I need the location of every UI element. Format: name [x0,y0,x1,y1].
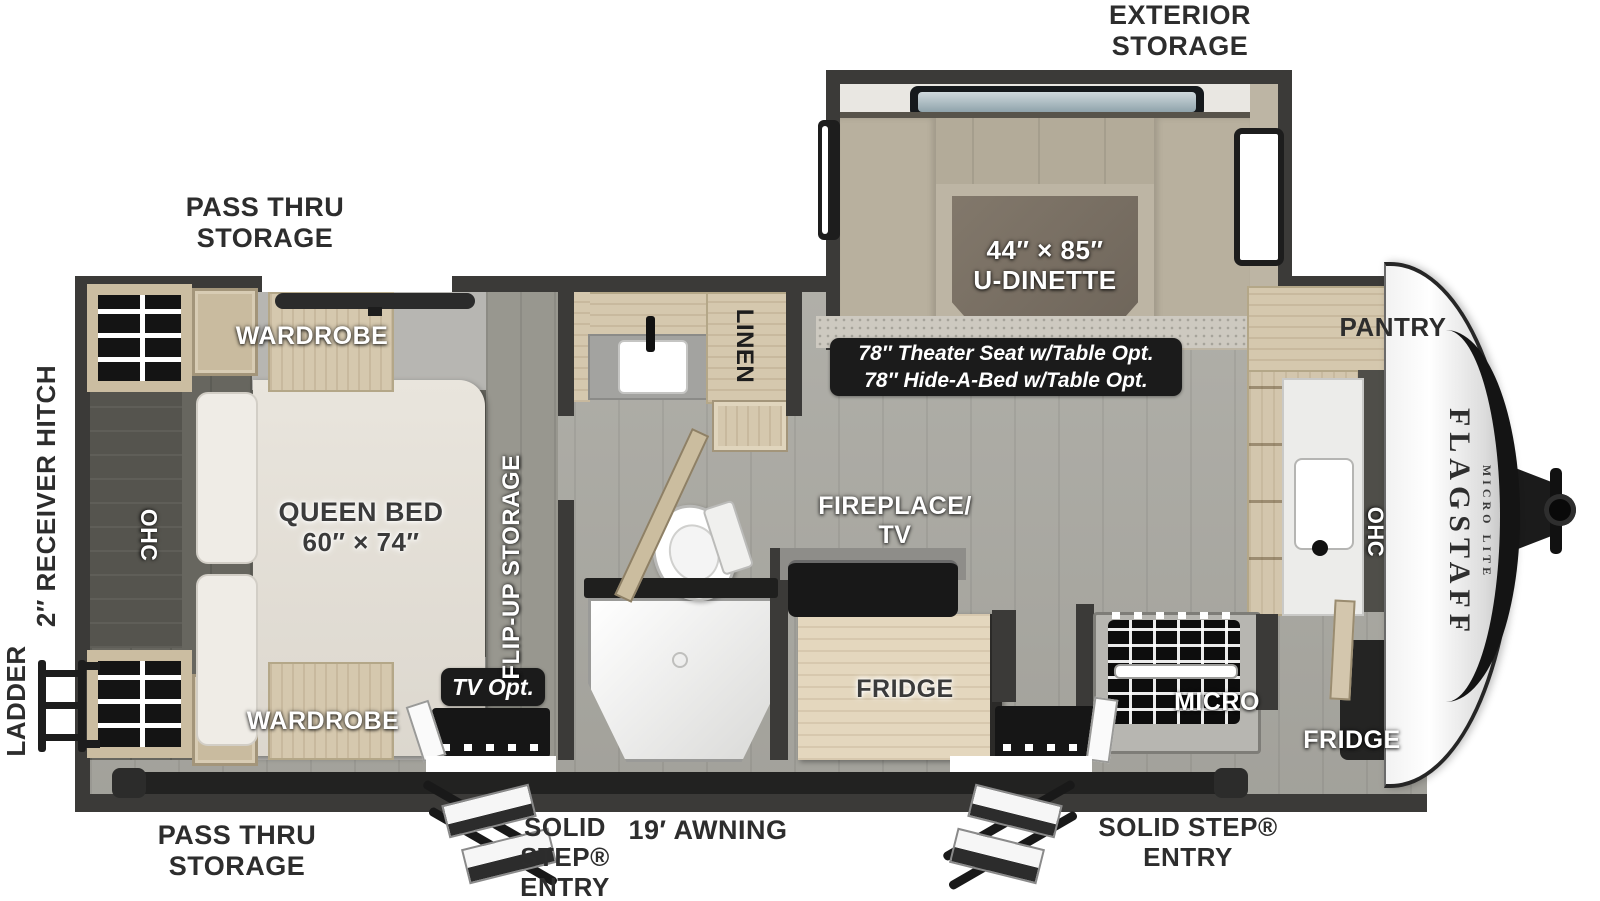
bedroom-window-opening [262,276,452,292]
label-pantry: PANTRY [1293,313,1493,343]
bath-faucet-icon [646,316,655,352]
slide-out: 44″ × 85″ U-DINETTE [826,70,1292,350]
kitchen-faucet-icon [1312,540,1328,556]
bath-wall-left-upper [558,292,574,416]
label-linen: LINEN [734,301,758,391]
slide-window-left-icon [818,120,840,240]
dinette-seat-left [840,118,936,336]
label-fridge-front: FRIDGE [1252,726,1452,755]
options-badge: 78″ Theater Seat w/Table Opt. 78″ Hide-A… [830,338,1182,396]
label-awning: 19′ AWNING [608,815,808,846]
slide-window-right-icon [1234,128,1284,266]
floorplan-canvas: 44″ × 85″ U-DINETTE FLAGSTAFF MICRO LITE [0,0,1600,901]
linen-drawer [712,400,788,452]
dinette-size-label: 44″ × 85″ [987,236,1104,266]
queen-bed-pillow-top [196,392,258,564]
shower-drain-icon [672,652,688,668]
kitchen-sink [1294,458,1354,550]
dinette-table: 44″ × 85″ U-DINETTE [952,196,1138,336]
vanity-cabinet [574,292,712,340]
fireplace-tv-unit [788,560,958,617]
label-micro: MICRO [1117,688,1317,717]
bath-wall-right-upper [786,292,802,416]
entry-step-left [432,708,550,758]
fireplace-line2: TV [795,521,995,550]
option-line2: 78″ Hide-A-Bed w/Table Opt. [864,367,1147,394]
label-fridge-main: FRIDGE [805,675,1005,704]
exterior-steps-right [940,790,1080,898]
dinette-name-label: U-DINETTE [973,266,1116,296]
queen-bed-line1: QUEEN BED [261,497,461,528]
tv-option-badge: TV Opt. [441,668,545,706]
option-line1: 78″ Theater Seat w/Table Opt. [858,340,1153,367]
oven-handle-icon [1114,664,1238,679]
label-bedroom-ohc: OHC [138,490,162,580]
rear-shelf-unit-bottom [87,650,192,758]
label-solid-step-right: SOLID STEP® ENTRY [1068,812,1308,872]
label-receiver-hitch: 2″ RECEIVER HITCH [32,346,58,646]
label-pass-thru-top: PASS THRU STORAGE [145,192,385,254]
label-kitchen-ohc: OHC [1364,487,1388,577]
awning-end-cap-right [1214,768,1248,798]
label-pass-thru-bottom: PASS THRU STORAGE [117,820,357,882]
label-wardrobe-bottom: WARDROBE [223,707,423,736]
label-fireplace-tv: FIREPLACE/ TV [795,492,995,550]
label-queen-bed: QUEEN BED 60″ × 74″ [261,497,461,558]
label-exterior-storage: EXTERIOR STORAGE [1060,0,1300,62]
label-wardrobe-top: WARDROBE [212,322,412,351]
label-ladder: LADDER [2,616,28,786]
shower-pan [588,598,780,762]
entry-step-right [995,706,1095,760]
bath-wall-left-lower [558,500,574,760]
rear-shelf-unit-top [87,284,192,392]
brand-logo: FLAGSTAFF [1440,363,1476,683]
queen-bed-line2: 60″ × 74″ [261,528,461,558]
brand-series-logo: MICRO LITE [1474,422,1494,622]
bedroom-window-latch [368,307,382,316]
label-flip-up-storage: FLIP-UP STORAGE [498,389,522,745]
fireplace-line1: FIREPLACE/ [795,492,995,521]
rear-ladder-icon [38,660,90,752]
shower-door-track [584,578,778,598]
hitch-coupler-icon [1544,494,1576,526]
awning-end-cap-left [112,768,146,798]
